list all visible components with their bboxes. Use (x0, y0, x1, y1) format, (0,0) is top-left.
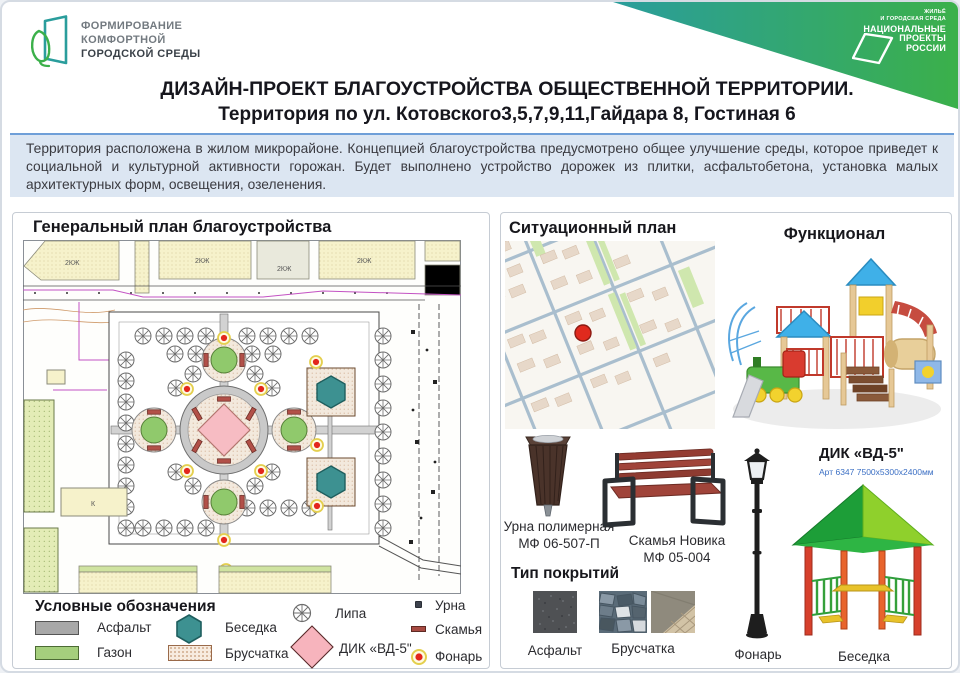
legend-label: Асфальт (97, 620, 151, 635)
covering-label: Брусчатка (593, 641, 693, 658)
legend-dik-diamond-icon (289, 624, 335, 670)
lamp-image (739, 447, 775, 641)
slide: ФОРМИРОВАНИЕ КОМФОРТНОЙ ГОРОДСКОЙ СРЕДЫ … (0, 0, 960, 673)
paver-texture-1 (599, 591, 647, 633)
page-title: ДИЗАЙН-ПРОЕКТ БЛАГОУСТРОЙСТВА ОБЩЕСТВЕНН… (122, 78, 892, 126)
dik-name: ДИК «ВД-5" (819, 445, 904, 462)
legend-urn-icon (415, 601, 422, 608)
details-panel: Ситуационный план Функционал (500, 212, 952, 669)
situation-map (505, 241, 715, 429)
gazebo-image (789, 481, 937, 645)
national-projects-flag-icon (852, 33, 894, 65)
coverings-title: Тип покрытий (511, 565, 619, 583)
dik-art: Арт 6347 7500х5300х2400мм (819, 467, 934, 477)
svg-text:2КЖ: 2КЖ (277, 266, 292, 273)
legend-asphalt-swatch (35, 621, 79, 635)
bench-image (593, 439, 731, 533)
program-logo-icon (26, 14, 72, 68)
general-plan-drawing: 2КЖ 2КЖ 2КЖ 2КЖ (23, 240, 461, 594)
legend-lantern-icon (409, 647, 429, 667)
legend-label: Фонарь (435, 649, 482, 664)
intro-text: Территория расположена в жилом микрорайо… (26, 140, 938, 195)
paver-texture-2 (651, 591, 695, 633)
asphalt-texture (533, 591, 577, 633)
situation-plan-title: Ситуационный план (509, 219, 676, 238)
legend-bench-icon (411, 626, 426, 632)
national-projects-badge: ЖИЛЬЁ И ГОРОДСКАЯ СРЕДА НАЦИОНАЛЬНЫЕ ПРО… (846, 9, 946, 54)
legend-linden-tree-icon (292, 603, 312, 623)
general-plan-panel: Генеральный план благоустройства (12, 212, 490, 669)
playground-image (719, 241, 951, 441)
legend-paver-swatch (168, 645, 212, 661)
program-logo: ФОРМИРОВАНИЕ КОМФОРТНОЙ ГОРОДСКОЙ СРЕДЫ (26, 14, 201, 68)
bench-label: Скамья Новика МФ 05-004 (619, 533, 735, 567)
general-plan-title: Генеральный план благоустройства (33, 218, 331, 237)
svg-text:2КЖ: 2КЖ (357, 258, 372, 265)
gazebo-label: Беседка (819, 649, 909, 666)
legend-gazebo-hexagon-icon (173, 613, 205, 645)
legend-label: Газон (97, 645, 132, 660)
map-location-marker (575, 325, 591, 341)
legend-lawn-swatch (35, 646, 79, 660)
legend-label: Урна (435, 598, 465, 613)
svg-text:2КЖ: 2КЖ (195, 258, 210, 265)
svg-text:2КЖ: 2КЖ (65, 260, 80, 267)
lamp-label: Фонарь (713, 647, 803, 664)
legend-label: Липа (335, 606, 366, 621)
program-logo-text: ФОРМИРОВАНИЕ КОМФОРТНОЙ ГОРОДСКОЙ СРЕДЫ (81, 20, 201, 61)
urn-image (519, 431, 577, 521)
legend-label: ДИК «ВД-5" (339, 641, 412, 656)
covering-label: Асфальт (519, 643, 591, 660)
intro-band: Территория расположена в жилом микрорайо… (10, 133, 954, 197)
legend-label: Скамья (435, 622, 482, 637)
legend-label: Брусчатка (225, 646, 289, 661)
legend-label: Беседка (225, 620, 277, 635)
